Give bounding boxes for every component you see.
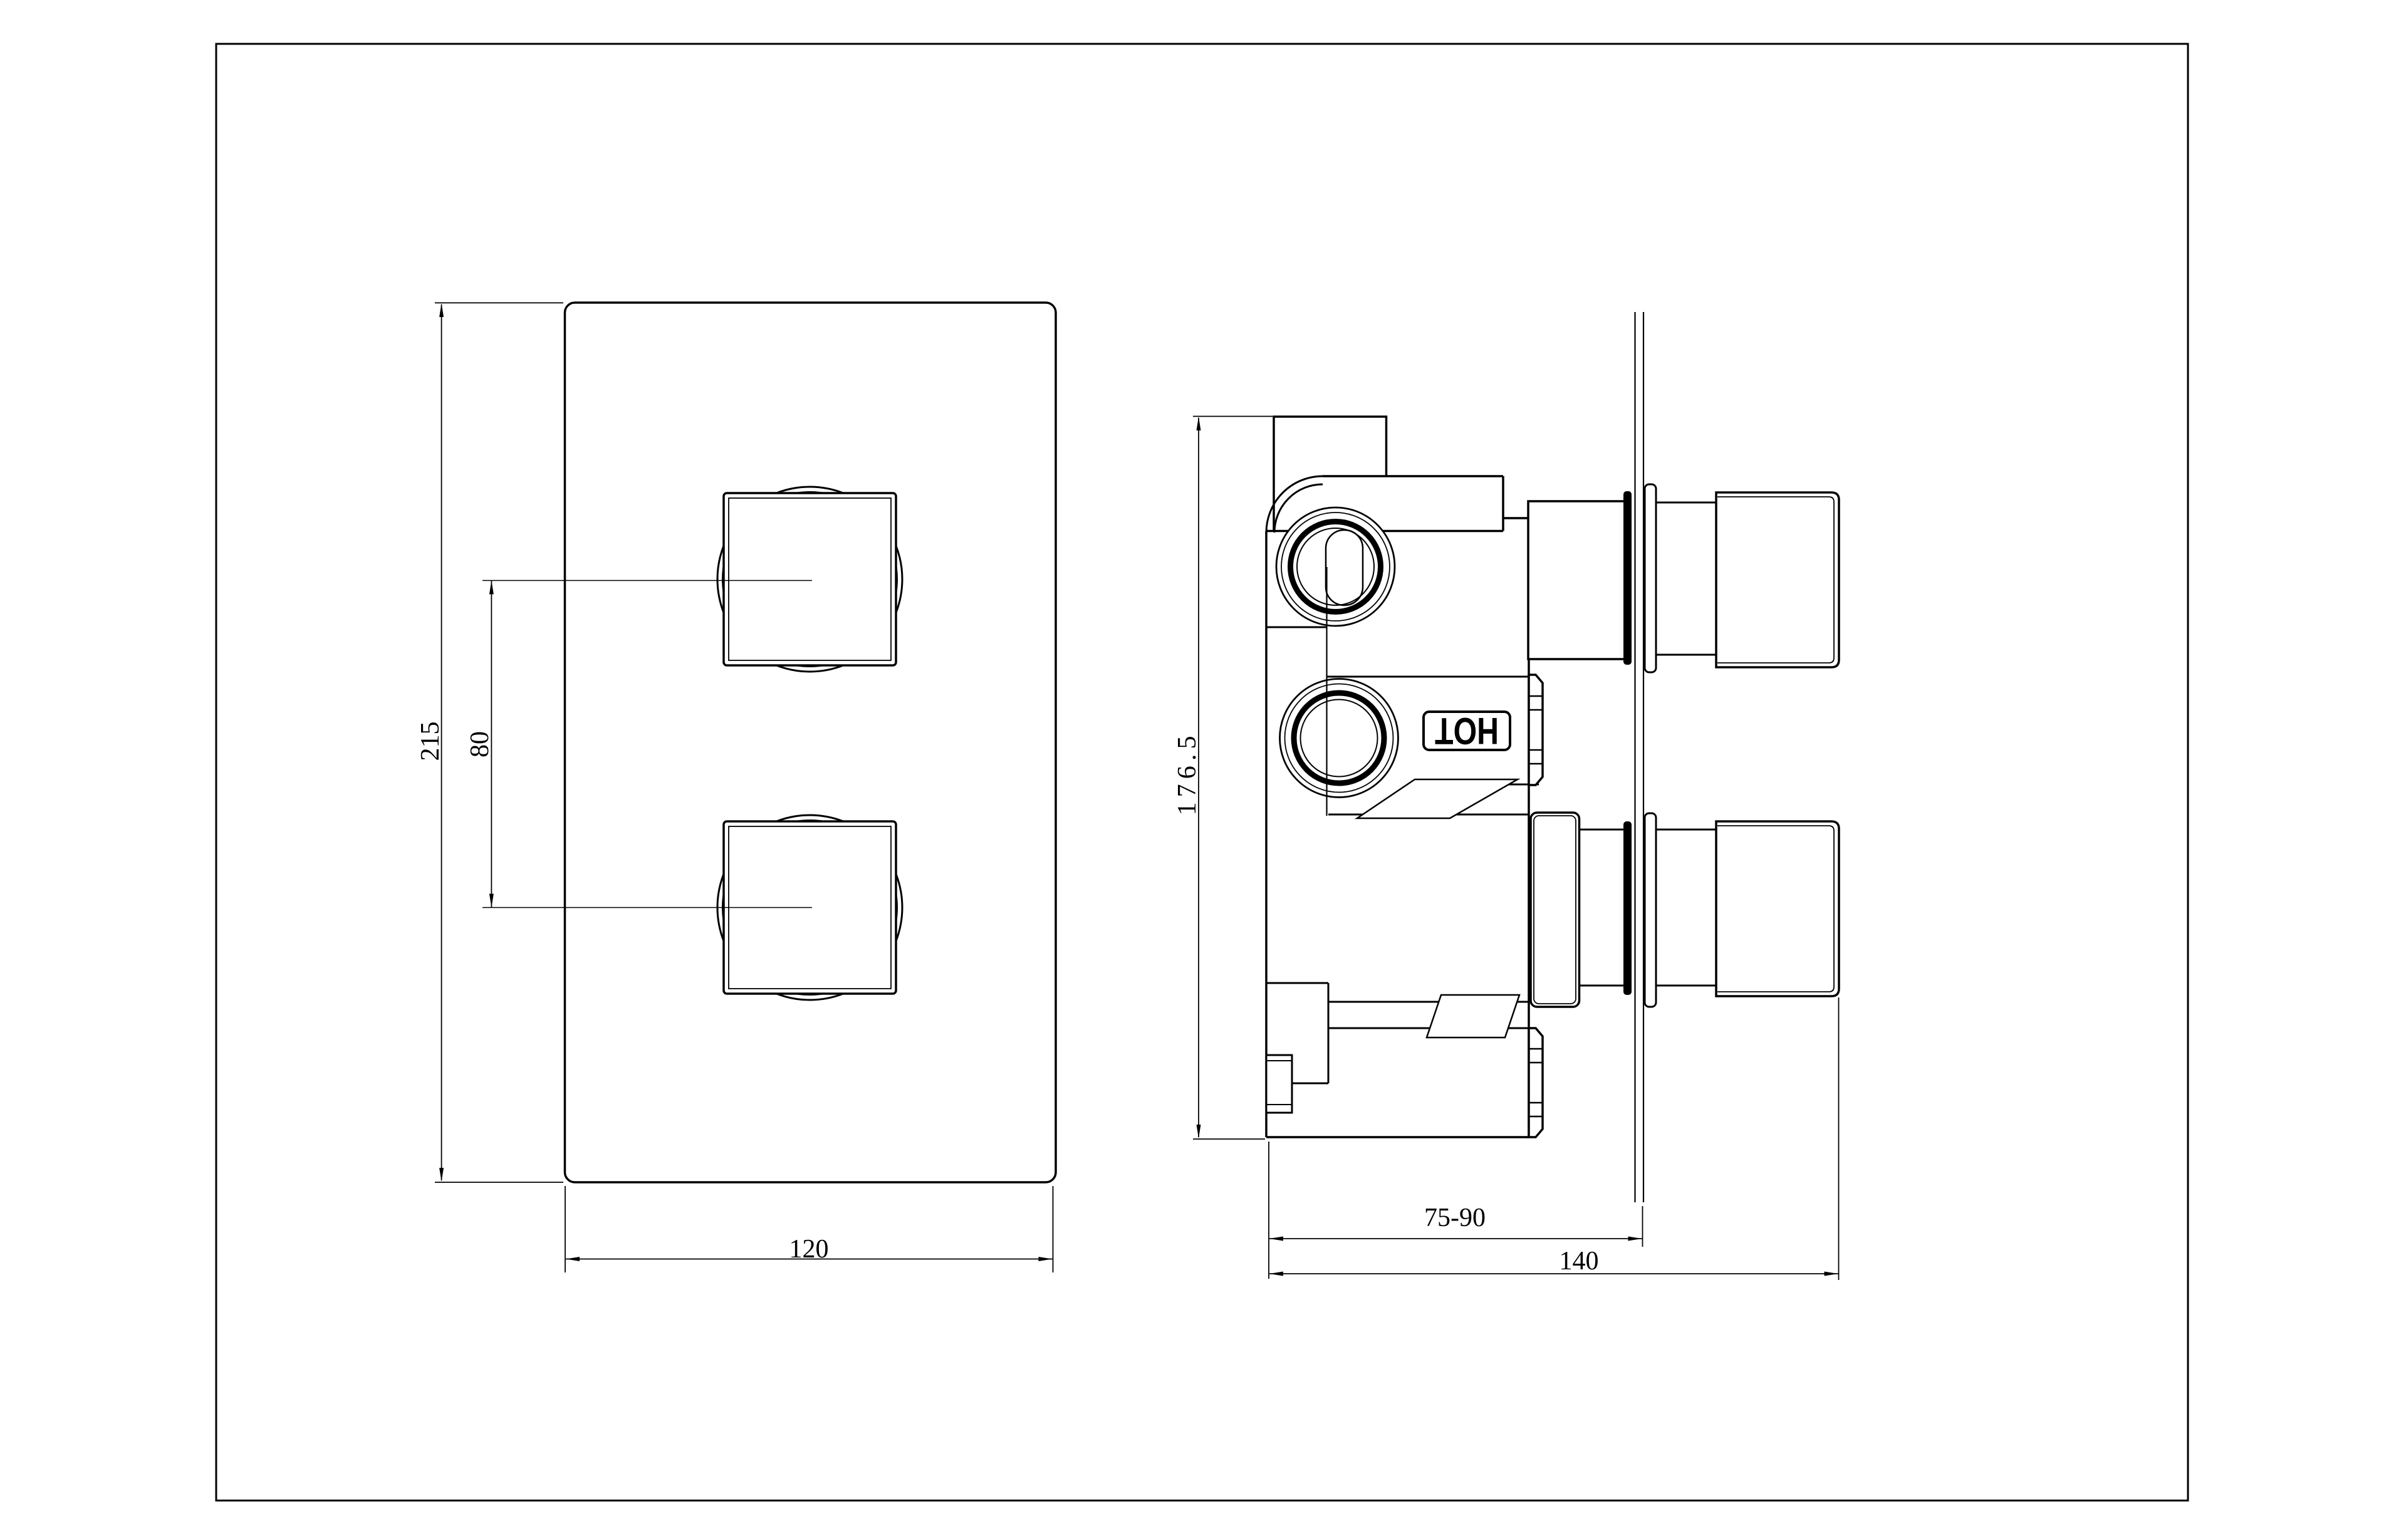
svg-text:140: 140	[1560, 1247, 1599, 1276]
svg-text:215: 215	[416, 722, 445, 761]
svg-text:80: 80	[466, 731, 494, 757]
svg-text:75-90: 75-90	[1424, 1204, 1486, 1232]
svg-text:120: 120	[789, 1235, 829, 1264]
svg-text:176.5: 176.5	[1173, 736, 1202, 816]
svg-text:HOT: HOT	[1435, 710, 1499, 752]
